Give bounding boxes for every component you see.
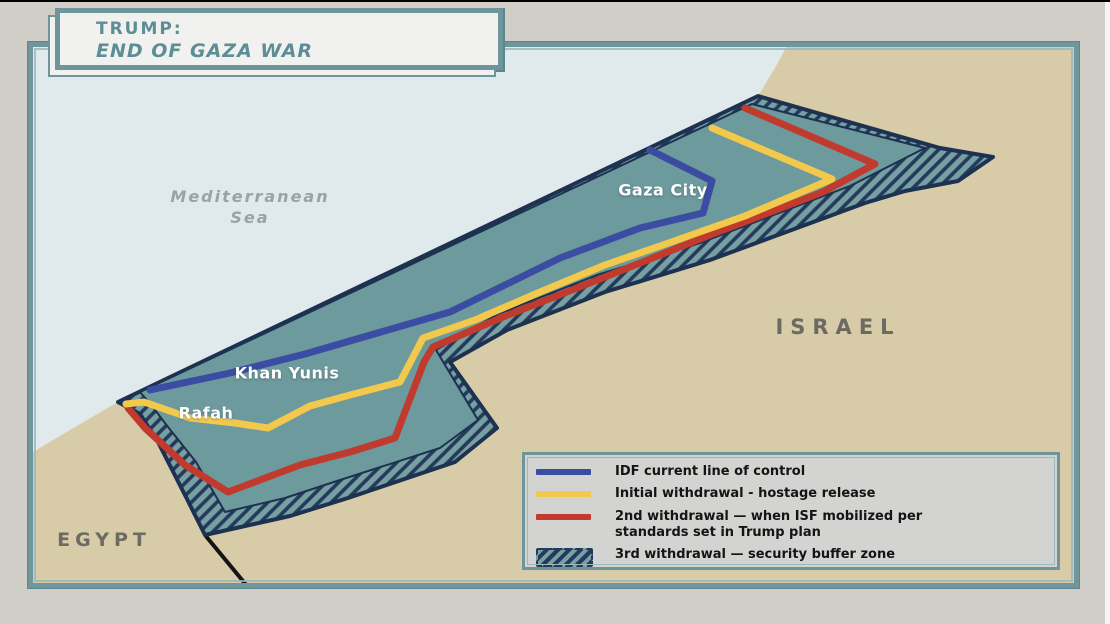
gaza-city-label: Gaza City bbox=[618, 181, 707, 200]
legend-item-idf-line: IDF current line of control bbox=[536, 464, 1043, 480]
khan-yunis-label: Khan Yunis bbox=[235, 364, 340, 383]
red-line-swatch bbox=[536, 514, 591, 520]
legend-item-third-withdrawal: 3rd withdrawal — security buffer zone bbox=[536, 547, 1043, 567]
blue-line-swatch bbox=[536, 469, 591, 475]
legend-item-second-withdrawal: 2nd withdrawal — when ISF mobilized per … bbox=[536, 509, 1043, 542]
israel-label: ISRAEL bbox=[775, 315, 900, 339]
title-line1: TRUMP: bbox=[96, 19, 498, 40]
legend-label-initial-withdrawal: Initial withdrawal - hostage release bbox=[615, 486, 875, 502]
right-edge-strip bbox=[1105, 2, 1110, 624]
rafah-label: Rafah bbox=[179, 404, 234, 423]
legend-label-second-withdrawal-line2: standards set in Trump plan bbox=[615, 525, 922, 541]
legend-label-third-withdrawal: 3rd withdrawal — security buffer zone bbox=[615, 547, 895, 563]
egypt-label: EGYPT bbox=[57, 529, 151, 551]
mediterranean-sea-label: Mediterranean Sea bbox=[170, 187, 329, 229]
news-graphic: { "title": { "line1": "TRUMP:", "line2":… bbox=[0, 0, 1110, 624]
legend-item-initial-withdrawal: Initial withdrawal - hostage release bbox=[536, 486, 1043, 502]
title-box: TRUMP: END OF GAZA WAR bbox=[55, 8, 503, 70]
buffer-zone-hatch-swatch bbox=[536, 548, 593, 567]
legend: IDF current line of control Initial with… bbox=[522, 452, 1060, 570]
top-edge-bar bbox=[0, 0, 1110, 2]
title-line2: END OF GAZA WAR bbox=[96, 40, 498, 63]
yellow-line-swatch bbox=[536, 491, 591, 497]
legend-label-idf: IDF current line of control bbox=[615, 464, 805, 480]
legend-label-second-withdrawal: 2nd withdrawal — when ISF mobilized per bbox=[615, 509, 922, 525]
